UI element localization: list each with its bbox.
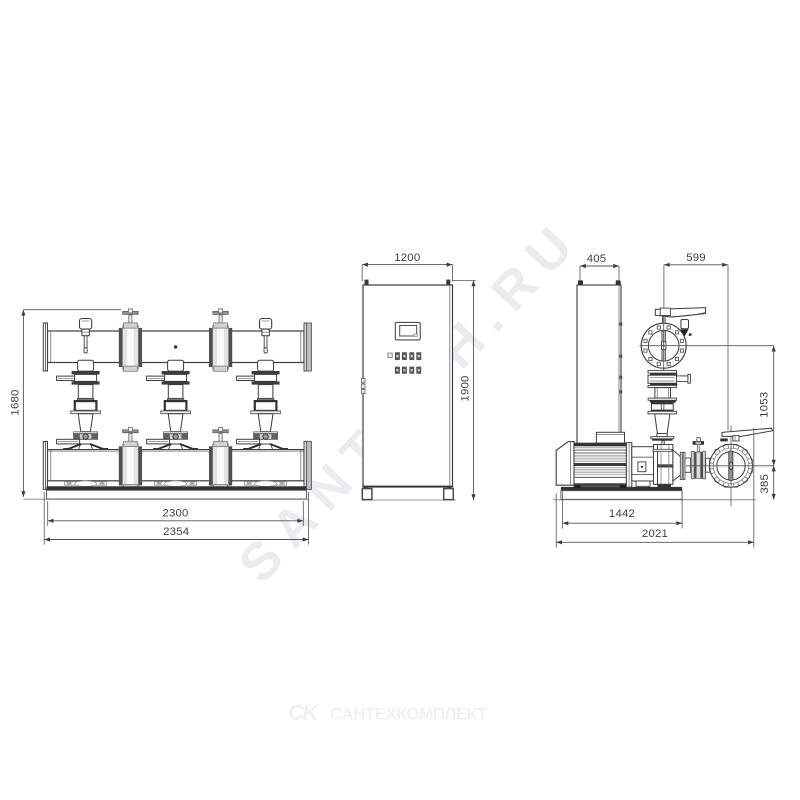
svg-text:1900: 1900 xyxy=(459,375,471,401)
svg-text:САНТЕХКОМПЛЕКТ: САНТЕХКОМПЛЕКТ xyxy=(330,705,488,724)
svg-text:CK: CK xyxy=(288,700,320,725)
svg-text:405: 405 xyxy=(587,253,607,265)
svg-text:385: 385 xyxy=(759,474,771,494)
svg-text:1200: 1200 xyxy=(394,252,420,264)
svg-text:1053: 1053 xyxy=(758,392,770,418)
svg-text:599: 599 xyxy=(686,252,706,264)
svg-text:2021: 2021 xyxy=(642,528,668,540)
svg-text:2354: 2354 xyxy=(163,526,189,538)
svg-text:2300: 2300 xyxy=(162,507,188,519)
svg-text:1442: 1442 xyxy=(609,508,635,520)
svg-text:1680: 1680 xyxy=(10,389,22,415)
